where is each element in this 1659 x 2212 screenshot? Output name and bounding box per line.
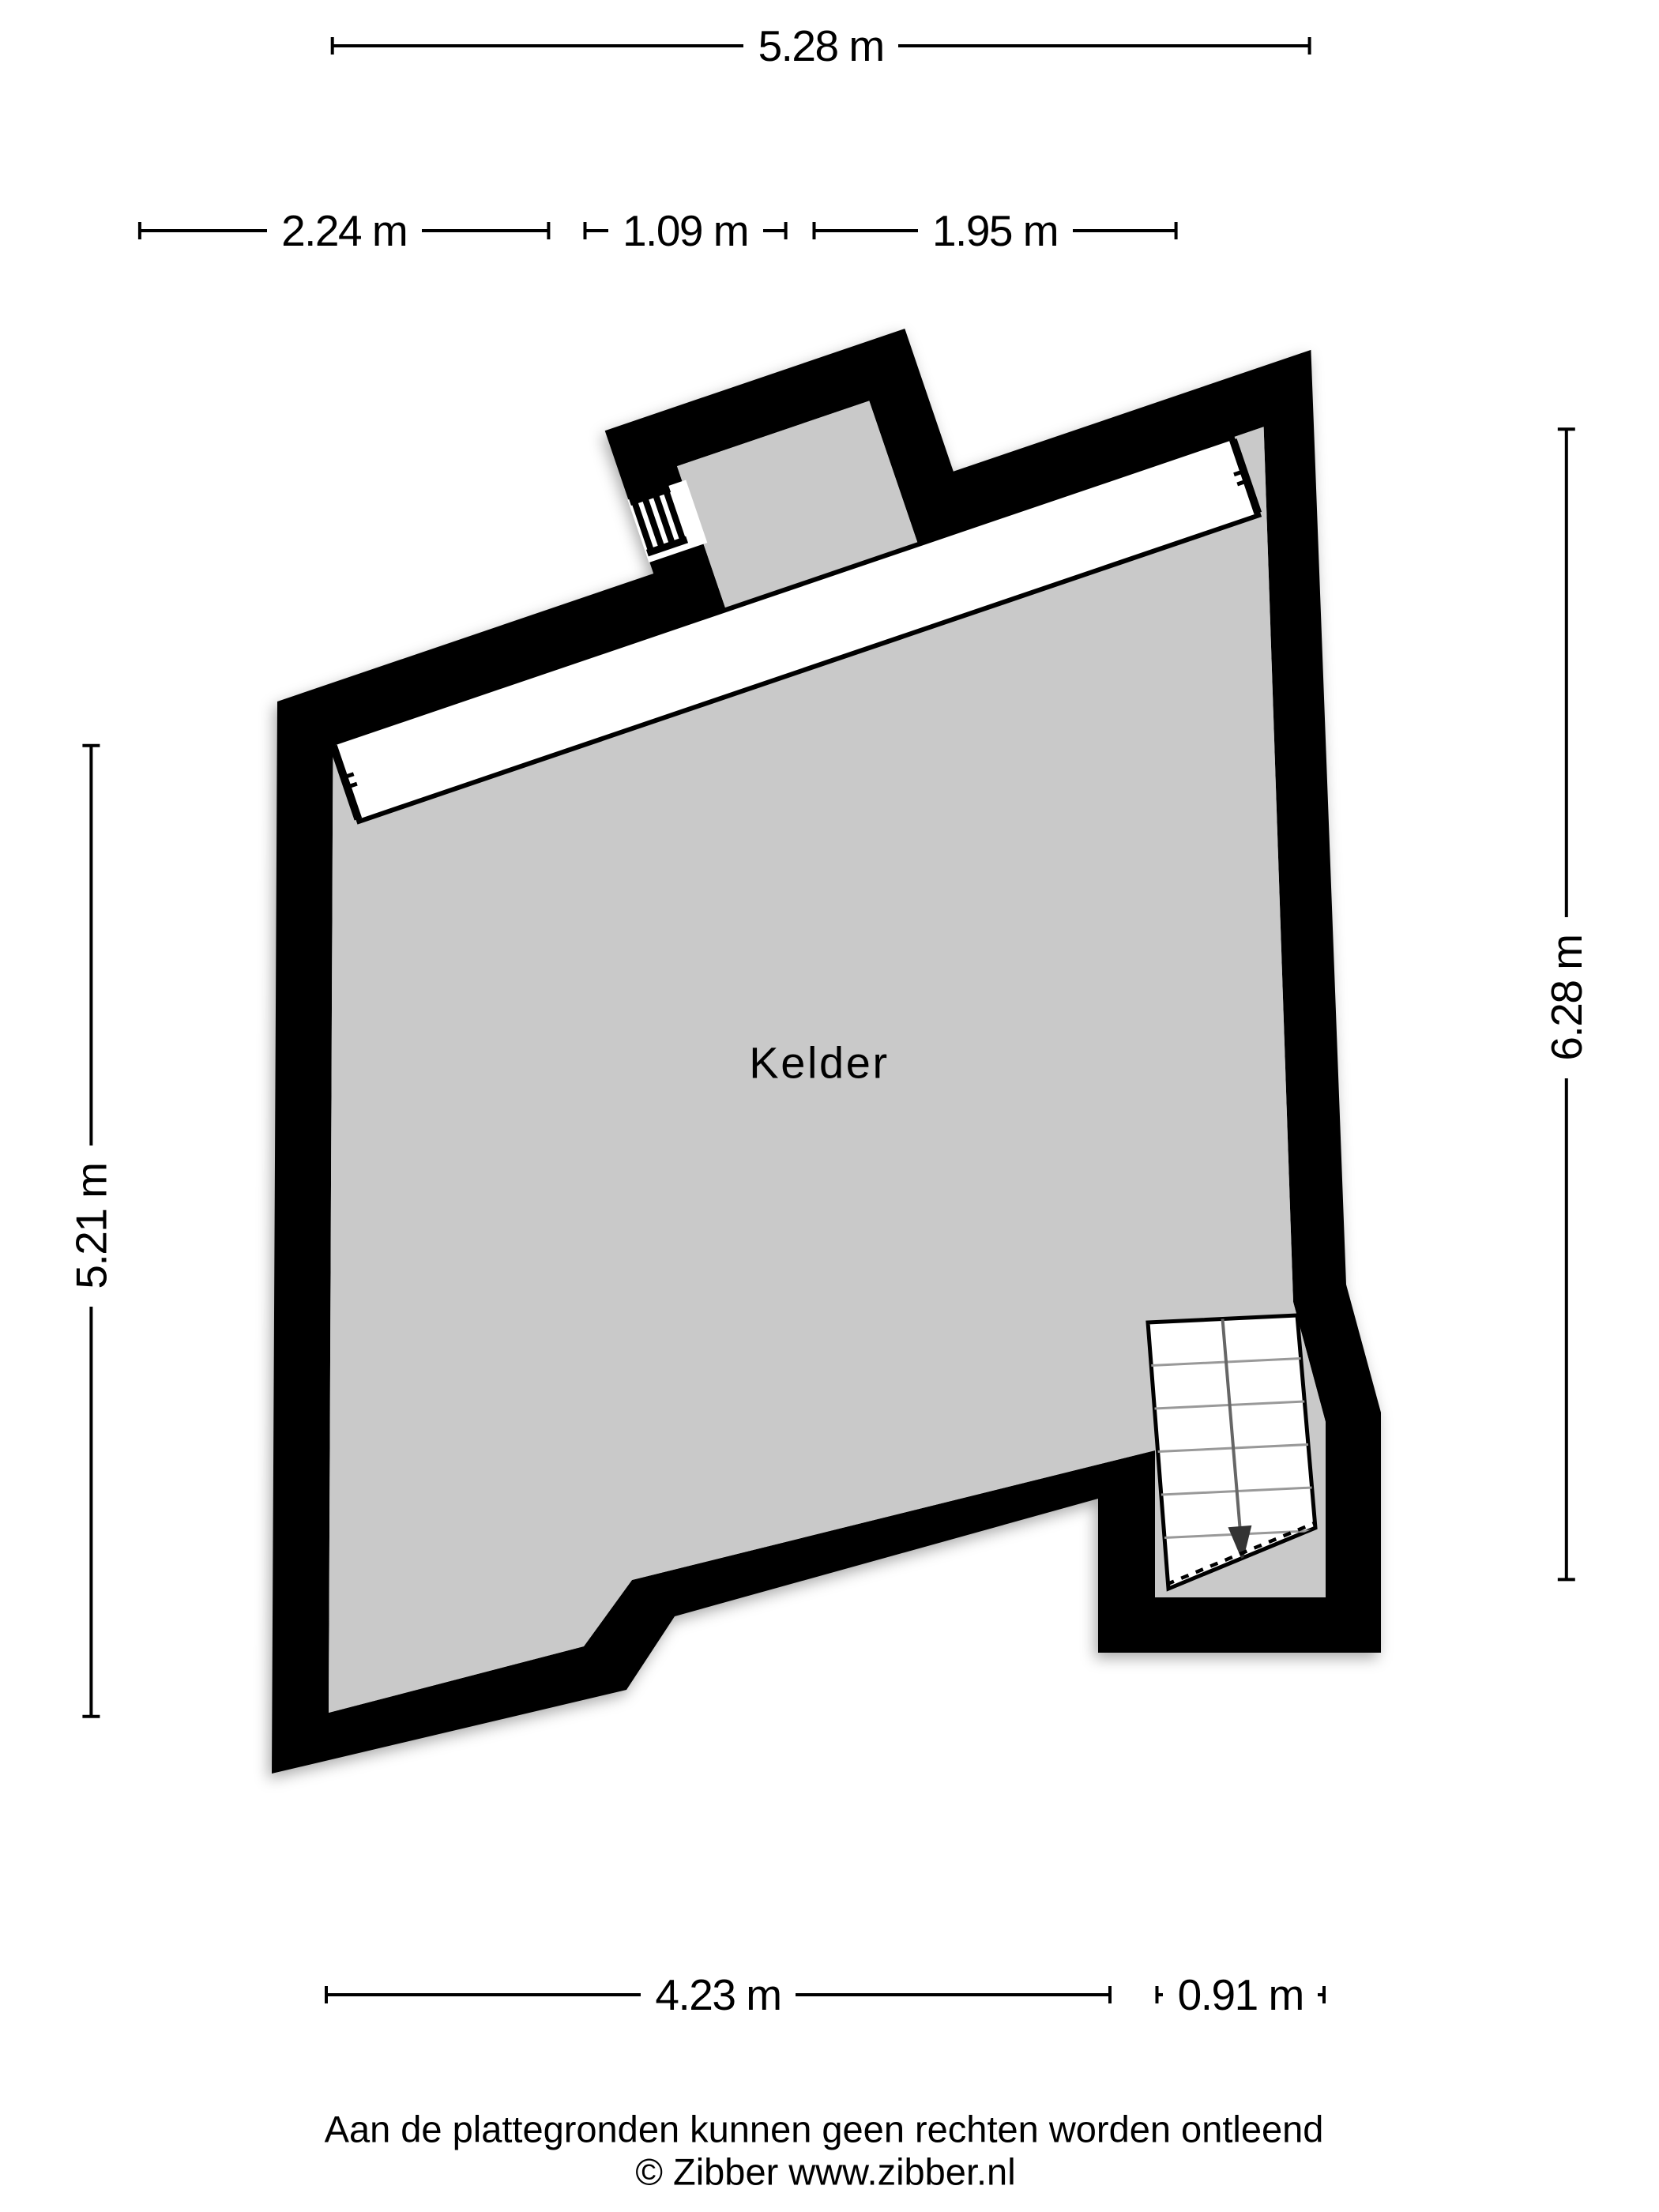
svg-text:Aan de plattegronden kunnen ge: Aan de plattegronden kunnen geen rechten… [325, 2109, 1324, 2150]
svg-text:1.95 m: 1.95 m [932, 206, 1058, 255]
svg-text:0.91 m: 0.91 m [1178, 1970, 1303, 2019]
svg-text:6.28 m: 6.28 m [1542, 935, 1591, 1060]
svg-text:5.28 m: 5.28 m [758, 21, 884, 70]
svg-text:Kelder: Kelder [749, 1038, 889, 1088]
svg-text:2.24 m: 2.24 m [281, 206, 407, 255]
svg-text:1.09 m: 1.09 m [623, 206, 748, 255]
svg-text:© Zibber www.zibber.nl: © Zibber www.zibber.nl [635, 2151, 1015, 2193]
svg-text:4.23 m: 4.23 m [655, 1970, 781, 2019]
svg-text:5.21 m: 5.21 m [66, 1163, 115, 1288]
